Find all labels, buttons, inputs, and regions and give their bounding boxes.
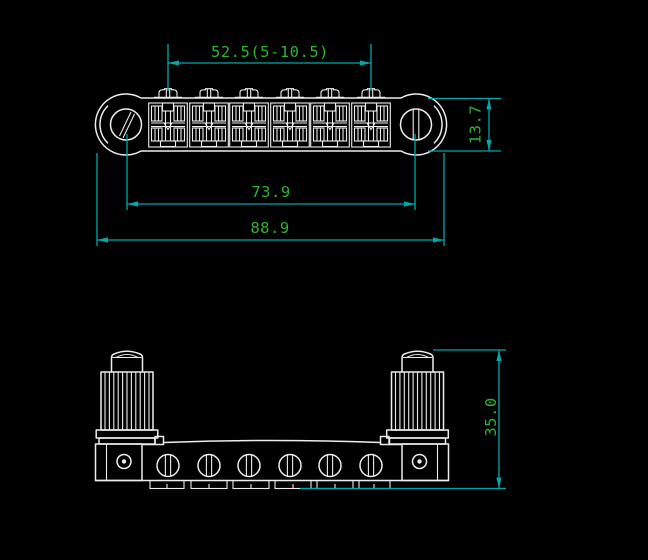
saddle-2 xyxy=(190,103,229,147)
bridge-front-view xyxy=(96,351,449,488)
saddle-3 xyxy=(230,103,269,147)
cad-drawing-canvas: 52.5(5-10.5) 13.7 73.9 88.9 35.0 xyxy=(0,0,648,560)
pivot-stud-right-center xyxy=(417,459,421,463)
intonation-screw-3 xyxy=(235,89,263,98)
post-hole-right xyxy=(401,109,432,140)
saddle-1 xyxy=(149,103,188,147)
bridge-top-view xyxy=(95,89,446,155)
saddle-screw-1 xyxy=(157,455,179,477)
saddle-screw-3 xyxy=(238,455,260,477)
saddle-screw-4 xyxy=(279,455,301,477)
dim-label-overall-length: 88.9 xyxy=(250,219,289,237)
intonation-screw-4 xyxy=(276,89,304,98)
saddle-6 xyxy=(352,103,391,147)
body-top-edge xyxy=(142,441,402,445)
saddle-5 xyxy=(311,103,350,147)
dim-label-overall-height: 35.0 xyxy=(482,397,500,436)
intonation-screw-5 xyxy=(316,89,344,98)
dim-label-post-spacing: 73.9 xyxy=(251,183,290,201)
end-block-right xyxy=(402,444,449,481)
post-hole-left xyxy=(111,109,142,140)
thumbwheel-post-right xyxy=(387,351,449,444)
saddle-screw-5 xyxy=(319,455,341,477)
dimension-bridge-width: 13.7 xyxy=(428,99,501,152)
saddle-screw-6 xyxy=(360,455,382,477)
left-ear-inner-arc xyxy=(100,106,108,143)
intonation-screw-2 xyxy=(195,89,223,98)
saddle-screw-2 xyxy=(198,455,220,477)
dimension-overall-height: 35.0 xyxy=(300,350,506,489)
end-block-left xyxy=(96,444,143,481)
bridge-drawing: 52.5(5-10.5) 13.7 73.9 88.9 35.0 xyxy=(0,0,648,560)
saddle-feet xyxy=(150,481,390,489)
dim-label-string-spread: 52.5(5-10.5) xyxy=(211,43,329,61)
right-ear-inner-arc xyxy=(434,106,442,143)
pivot-stud-left-center xyxy=(122,459,126,463)
dim-label-bridge-width: 13.7 xyxy=(467,105,485,144)
thumbwheel-post-left xyxy=(96,351,158,444)
dimension-string-spread: 52.5(5-10.5) xyxy=(168,43,371,91)
saddle-4 xyxy=(271,103,310,147)
